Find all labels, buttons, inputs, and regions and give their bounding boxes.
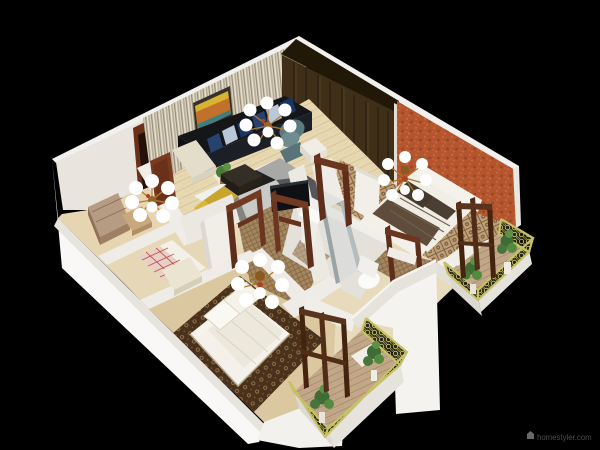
svg-text:homestyler.com: homestyler.com: [537, 433, 592, 442]
